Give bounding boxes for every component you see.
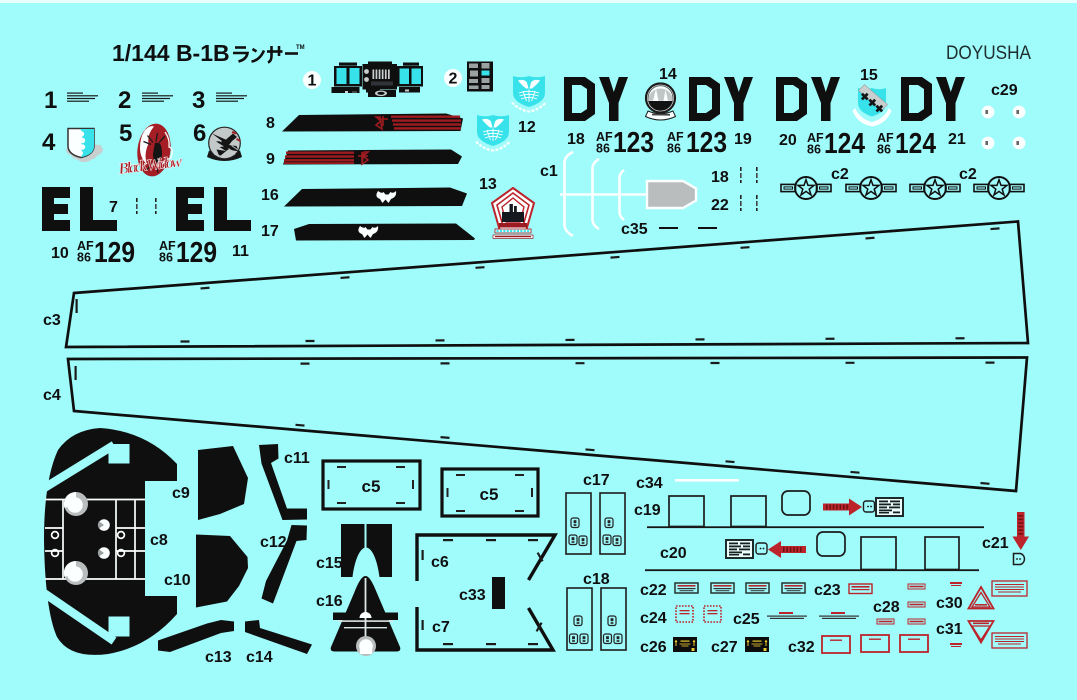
svg-text:c5: c5 (480, 485, 499, 504)
svg-text:c22: c22 (640, 582, 667, 599)
svg-text:c34: c34 (636, 475, 663, 492)
svg-text:123: 123 (613, 127, 654, 159)
svg-text:21: 21 (948, 131, 966, 148)
svg-text:c6: c6 (431, 554, 449, 571)
svg-text:c15: c15 (316, 555, 343, 572)
svg-text:c14: c14 (246, 649, 273, 666)
svg-text:86: 86 (596, 142, 610, 156)
svg-text:19: 19 (734, 131, 752, 148)
svg-text:c21: c21 (982, 535, 1009, 552)
svg-text:1: 1 (308, 73, 317, 90)
svg-text:c35: c35 (621, 221, 648, 238)
svg-text:86: 86 (807, 143, 821, 157)
svg-text:c24: c24 (640, 610, 667, 627)
svg-text:15: 15 (860, 67, 878, 84)
svg-text:c30: c30 (936, 595, 963, 612)
svg-text:c17: c17 (583, 472, 610, 489)
svg-text:18: 18 (567, 131, 585, 148)
svg-text:c29: c29 (991, 82, 1018, 99)
svg-text:c28: c28 (873, 599, 900, 616)
svg-text:2: 2 (449, 71, 458, 88)
svg-text:10: 10 (51, 245, 69, 262)
svg-text:12: 12 (518, 119, 536, 136)
svg-text:5: 5 (119, 120, 132, 147)
svg-text:c27: c27 (711, 639, 738, 656)
svg-text:c32: c32 (788, 639, 815, 656)
svg-text:c11: c11 (284, 450, 310, 467)
svg-text:c13: c13 (205, 649, 232, 666)
svg-text:86: 86 (159, 251, 173, 265)
svg-text:8: 8 (266, 115, 275, 132)
svg-text:c5: c5 (362, 477, 381, 496)
svg-text:20: 20 (779, 132, 797, 149)
svg-text:22: 22 (711, 197, 729, 214)
svg-text:c19: c19 (634, 502, 661, 519)
svg-text:6: 6 (193, 120, 206, 147)
svg-text:129: 129 (176, 237, 217, 269)
svg-text:3: 3 (192, 87, 205, 114)
svg-text:129: 129 (94, 237, 135, 269)
svg-text:c7: c7 (432, 619, 450, 636)
svg-text:14: 14 (659, 66, 677, 83)
svg-text:1: 1 (44, 87, 57, 114)
svg-text:18: 18 (711, 169, 729, 186)
svg-text:86: 86 (77, 251, 91, 265)
svg-text:86: 86 (877, 143, 891, 157)
svg-text:c3: c3 (43, 312, 61, 329)
svg-text:c1: c1 (540, 163, 558, 180)
svg-text:2: 2 (118, 87, 131, 114)
svg-text:c8: c8 (150, 532, 168, 549)
svg-text:c26: c26 (640, 639, 667, 656)
svg-text:c10: c10 (164, 572, 191, 589)
svg-text:c18: c18 (583, 571, 610, 588)
svg-text:4: 4 (42, 129, 56, 156)
svg-text:86: 86 (667, 142, 681, 156)
svg-text:c31: c31 (936, 621, 963, 638)
svg-text:DOYUSHA: DOYUSHA (946, 43, 1031, 64)
svg-text:c16: c16 (316, 593, 343, 610)
svg-text:c9: c9 (172, 485, 190, 502)
svg-text:17: 17 (261, 223, 279, 240)
svg-text:c20: c20 (660, 545, 687, 562)
svg-text:123: 123 (686, 127, 727, 159)
svg-text:16: 16 (261, 187, 279, 204)
svg-text:1/144 B-1B: 1/144 B-1B (112, 40, 230, 66)
svg-text:c25: c25 (733, 611, 760, 628)
svg-text:7: 7 (109, 199, 118, 216)
svg-text:124: 124 (895, 128, 936, 160)
svg-text:c33: c33 (459, 587, 486, 604)
svg-text:9: 9 (266, 151, 275, 168)
svg-text:124: 124 (824, 128, 865, 160)
svg-text:c2: c2 (831, 166, 849, 183)
svg-text:13: 13 (479, 176, 497, 193)
svg-text:c23: c23 (814, 582, 841, 599)
svg-text:c2: c2 (959, 166, 977, 183)
svg-text:c4: c4 (43, 387, 61, 404)
svg-text:TM: TM (296, 45, 305, 51)
svg-text:c12: c12 (260, 534, 287, 551)
svg-text:11: 11 (232, 243, 249, 260)
